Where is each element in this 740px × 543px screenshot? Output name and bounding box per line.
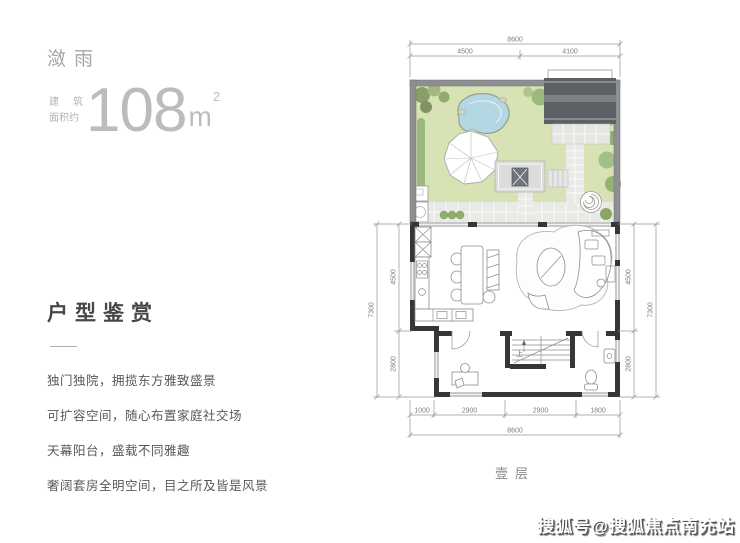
dim-top-total: 8600	[507, 37, 523, 44]
feature-item: 独门独院，拥揽东方雅致盛景	[47, 370, 268, 389]
kitchen-lower-cabinet	[415, 309, 473, 321]
dim-bottom-b: 2900	[462, 408, 478, 415]
dim-bottom-d: 1800	[590, 408, 606, 415]
stairs: 上	[512, 336, 570, 364]
stair-up-label: 上	[516, 349, 523, 358]
feature-item: 天幕阳台，盛载不同雅趣	[47, 440, 268, 459]
platform-path	[518, 192, 533, 222]
garden	[410, 70, 621, 222]
window-top-wall	[410, 222, 620, 227]
garden-walk-path	[566, 144, 584, 204]
area-block: 建 筑 面积约 108 m 2	[49, 82, 220, 140]
dim-left-a: 4500	[391, 269, 398, 285]
brochure-page: 潋雨 建 筑 面积约 108 m 2 户型鉴赏 独门独院，拥揽东方雅致盛景 可扩…	[0, 0, 740, 543]
feature-list: 独门独院，拥揽东方雅致盛景 可扩容空间，随心布置家庭社交场 天幕阳台，盛载不同雅…	[47, 370, 268, 510]
toilet	[586, 370, 597, 384]
desk-chair	[461, 364, 470, 373]
dim-right-b: 2800	[626, 356, 633, 372]
dim-left-total: 7300	[369, 302, 376, 318]
wall-step	[410, 326, 439, 331]
gate-porch	[552, 124, 610, 144]
dim-top-a: 4500	[457, 49, 473, 56]
dim-bottom-c: 2900	[533, 408, 549, 415]
platform-steps	[548, 170, 568, 187]
area-value: 108	[86, 82, 186, 140]
dim-right-total: 7300	[648, 302, 655, 318]
wall-left	[410, 222, 415, 331]
area-caption-line1b: 筑	[73, 95, 83, 111]
kitchen-counter	[415, 257, 429, 309]
area-caption-line2: 面积约	[49, 111, 83, 127]
dim-bottom-total: 8600	[507, 428, 523, 435]
area-unit-superscript: 2	[213, 82, 220, 112]
floor-plan-svg: 上	[352, 28, 740, 455]
dining-area	[451, 246, 499, 304]
section-title: 户型鉴赏	[47, 297, 159, 327]
area-unit: m	[188, 94, 211, 140]
wall-band-left	[434, 331, 439, 397]
divider-line	[50, 346, 77, 347]
dining-table	[461, 246, 483, 304]
wall-bottom	[434, 392, 620, 397]
area-caption: 建 筑 面积约	[49, 95, 83, 127]
watermark: 搜狐号@搜狐焦点南充站	[537, 512, 735, 537]
pouf	[597, 279, 605, 287]
gate-roof	[544, 70, 616, 124]
dim-right-a: 4500	[626, 269, 633, 285]
feature-item: 可扩容空间，随心布置家庭社交场	[47, 405, 268, 424]
interior: 上	[410, 222, 620, 397]
living-room	[516, 225, 615, 310]
floor-label: 壹层	[352, 463, 678, 482]
dining-chair	[483, 291, 495, 303]
dim-top-b: 4100	[562, 49, 578, 56]
shrub-strip	[417, 118, 425, 190]
garden-pond	[458, 94, 509, 135]
spiral-feature	[581, 192, 602, 213]
bush-row	[440, 211, 464, 219]
dim-left-b: 2800	[391, 356, 398, 372]
unit-name: 潋雨	[47, 44, 101, 71]
area-caption-line1a: 建	[49, 95, 59, 111]
feature-item: 奢阔套房全明空间，目之所及皆是风景	[47, 475, 268, 494]
wall-right	[615, 222, 620, 397]
dim-bottom-a: 1000	[414, 408, 430, 415]
bathroom-sink	[604, 349, 615, 363]
